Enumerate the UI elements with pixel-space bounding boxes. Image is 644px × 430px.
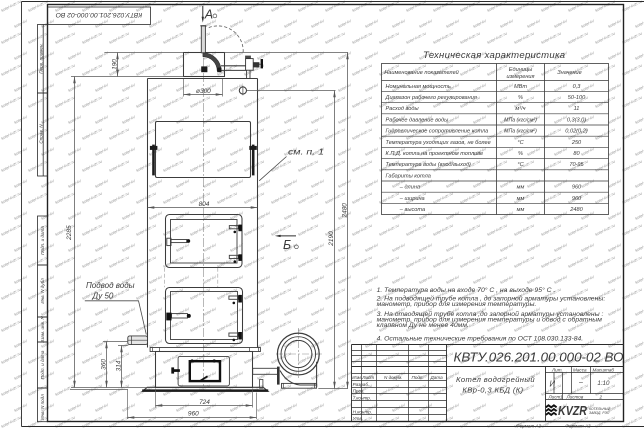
svg-text:2480: 2480 [569,207,583,213]
svg-text:Утв.: Утв. [353,416,363,421]
svg-text:Рабочее давление воды: Рабочее давление воды [386,117,449,123]
svg-text:Масса: Масса [573,367,587,372]
svg-text:Формат А3: Формат А3 [565,423,591,428]
svg-text:мм: мм [517,185,525,191]
svg-text:Подвод воды: Подвод воды [86,281,135,290]
svg-text:измерения: измерения [507,74,535,80]
svg-text:– ширина: – ширина [399,196,425,202]
svg-text:клапаном Ду не менее 40мм.: клапаном Ду не менее 40мм. [377,322,469,329]
svg-text:Подп.: Подп. [412,375,424,380]
svg-text:Масштаб: Масштаб [593,367,615,372]
svg-text:Перв. примен.: Перв. примен. [38,43,43,74]
svg-text:Подп. и дата: Подп. и дата [40,226,45,255]
svg-text:Габариты котла: Габариты котла [386,173,431,179]
svg-text:KVZR: KVZR [558,404,587,418]
svg-text:724: 724 [199,399,210,406]
svg-text:Т.контр.: Т.контр. [353,395,372,400]
svg-text:0,3: 0,3 [573,84,582,90]
svg-text:2: 2 [599,395,603,400]
svg-text:Температура воды (вход/выход): Температура воды (вход/выход) [386,162,472,168]
svg-text:Номинальная мощность: Номинальная мощность [386,84,451,90]
svg-text:КВТУ.026.201.00.000-02 ВО: КВТУ.026.201.00.000-02 ВО [55,11,142,18]
svg-text:Инв. N подл: Инв. N подл [40,394,45,420]
svg-text:Формат А3: Формат А3 [516,423,542,428]
svg-text:Разраб.: Разраб. [353,382,370,387]
svg-text:1:10: 1:10 [597,380,610,387]
svg-text:314: 314 [116,360,123,371]
svg-text:1. Температура воды на входе: 1. Температура воды на входе 70° С , на … [377,286,556,294]
svg-text:МПа (кгс/см²): МПа (кгс/см²) [504,117,537,123]
svg-text:И: И [550,380,556,389]
svg-text:360: 360 [101,359,108,370]
svg-text:Взам. инв. N: Взам. инв. N [40,315,45,342]
svg-text:–: – [578,380,583,387]
svg-text:Лист: Лист [361,375,374,380]
svg-text:– длина: – длина [399,185,420,191]
svg-text:Техническая характеристика: Техническая характеристика [423,50,565,61]
svg-text:м³/ч: м³/ч [515,106,525,112]
svg-text:Справ. N: Справ. N [38,124,43,144]
svg-text:70-95: 70-95 [569,162,584,168]
svg-text:Наименование показателей: Наименование показателей [384,69,459,76]
svg-text:Инв. N дубл: Инв. N дубл [40,278,45,304]
svg-text:мм: мм [517,207,525,213]
svg-text:Расход воды: Расход воды [386,106,419,112]
svg-text:ЗАВОД. РЭП: ЗАВОД. РЭП [589,411,610,415]
svg-text:50-100: 50-100 [568,95,586,101]
svg-text:2480: 2480 [341,203,348,219]
svg-text:мм: мм [517,196,525,202]
svg-text:Значение: Значение [557,70,582,76]
svg-text:– высота: – высота [399,207,425,213]
svg-text:250: 250 [571,140,582,146]
svg-text:Пров.: Пров. [353,389,365,394]
svg-text:К.П.Д. котла на проектном топл: К.П.Д. котла на проектном топливе [386,151,484,157]
svg-text:Дата: Дата [430,375,444,380]
svg-text:0,3(3,0): 0,3(3,0) [567,117,586,123]
svg-text:%: % [518,151,523,157]
svg-text:°С: °С [517,140,524,146]
svg-text:Диапазон рабочего регулировани: Диапазон рабочего регулирования [385,95,477,101]
svg-text:804: 804 [199,201,210,208]
svg-text:Б: Б [283,238,291,252]
svg-text:Лист: Лист [548,395,561,400]
svg-text:2190: 2190 [328,231,335,247]
svg-text:Листов: Листов [566,395,584,400]
svg-text:4. Остальные технические тре: 4. Остальные технические требования по О… [377,335,584,343]
svg-text:N докум.: N докум. [384,375,403,380]
svg-text:Температура уходящих газов, не: Температура уходящих газов, не более [386,140,491,146]
svg-text:°С: °С [517,162,524,168]
svg-text:МПа (кгс/см²): МПа (кгс/см²) [504,129,537,135]
svg-text:960: 960 [188,411,199,418]
svg-text:манометр, прибор для измерения: манометр, прибор для измерения температу… [377,300,537,308]
svg-text:Изм.: Изм. [352,375,362,380]
svg-text:%: % [518,95,523,101]
svg-text:Лит.: Лит. [551,367,563,372]
svg-text:Единицы: Единицы [509,67,532,73]
svg-text:1: 1 [560,395,563,400]
svg-text:см. п. 1: см. п. 1 [288,148,324,157]
svg-text:КВТУ.026.201.00.000-02 ВО: КВТУ.026.201.00.000-02 ВО [454,350,624,365]
svg-text:ø300: ø300 [196,88,211,95]
svg-text:190: 190 [112,59,119,70]
svg-text:Подп. и дата: Подп. и дата [40,350,45,379]
svg-text:Ду 50: Ду 50 [92,292,114,301]
svg-text:КОТЕЛЬНЫЙ: КОТЕЛЬНЫЙ [589,407,611,411]
svg-text:Гидравлическое сопротивление к: Гидравлическое сопротивление котла [386,129,489,135]
svg-text:А: А [204,8,213,22]
svg-text:2285: 2285 [66,225,73,241]
svg-text:МВт: МВт [514,84,527,90]
svg-text:Н.контр.: Н.контр. [353,410,372,415]
svg-text:0,02(0,2): 0,02(0,2) [565,129,588,135]
svg-text:960: 960 [572,196,582,202]
svg-text:960: 960 [572,185,582,191]
svg-text:11: 11 [574,106,580,112]
svg-text:КВр-0,3 КБД (К): КВр-0,3 КБД (К) [462,386,523,395]
svg-text:Котел водогрейный: Котел водогрейный [456,375,535,384]
svg-text:80: 80 [573,151,580,157]
